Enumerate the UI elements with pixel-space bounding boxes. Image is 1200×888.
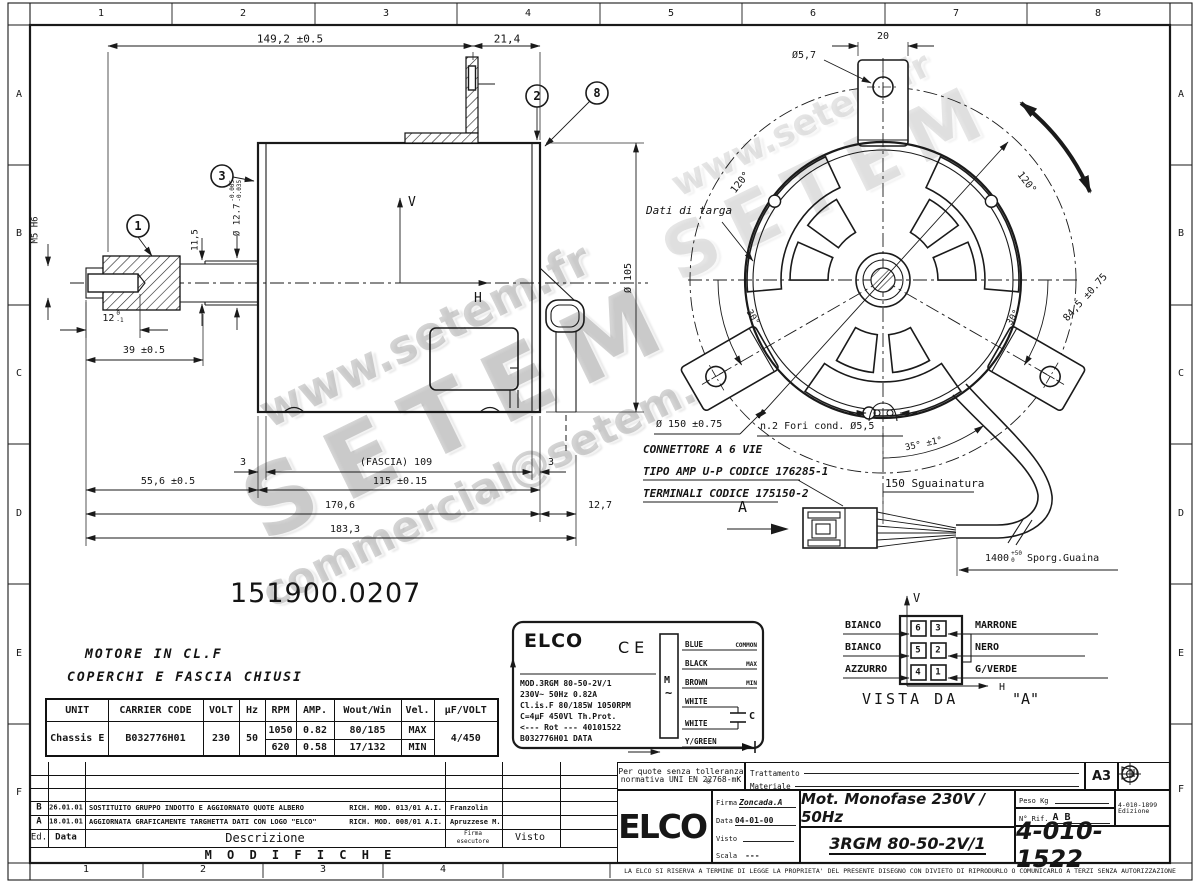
tolerance-note-box: Per quote senza tolleranza normativa UNI… [617,762,745,790]
ruler-left-e: E [16,649,22,659]
ruler-top-3: 3 [383,9,389,19]
dim-170-6: 170,6 [325,501,355,511]
spec-header-rpm: RPM [265,699,296,721]
data-value: 04-01-00 [735,817,796,826]
spec-w-min: 17/132 [334,739,401,756]
dim-11-5: 11,5 [192,229,201,251]
wire-blue: BLUE [685,641,703,649]
axis-v-label: V [408,196,416,209]
mod-b-desc: SOSTITUITO GRUPPO INDOTTO E AGGIORNATO Q… [89,805,304,812]
mods-col-line [560,762,561,847]
dim-183-3: 183,3 [330,525,360,535]
nameplate-line-3: Cl.is.F 80/185W 1050RPM [520,702,631,710]
registered-mark-icon: ® [706,777,711,786]
ruler-right-e: E [1178,649,1184,659]
spec-header-amp: AMP. [296,699,334,721]
dim-tab-width-20: 20 [877,32,889,42]
drawing-number: 4-010-1522 [1016,817,1169,873]
signature-box: FirmaZoncada.A Data04-01-00 Visto Scala-… [712,790,800,863]
spec-uf: 4/450 [434,721,498,756]
company-logo: ELCO [618,807,706,846]
wire-tag-max: MAX [746,662,757,668]
mods-header-desc: Descrizione [225,832,304,844]
axis-h-label: H [474,292,482,305]
scala-label: Scala [716,853,737,860]
tol-lower: -0.035 [237,180,244,202]
mods-header-data: Data [55,834,77,843]
ruler-bottom-4: 4 [440,865,446,875]
nameplate-line-4: C=4µF 450Vl Th.Prot. [520,713,616,721]
wire-tag-min: MIN [746,681,757,687]
weight-label: Peso Kg [1019,798,1049,805]
projection-icons-box [1118,762,1170,790]
note-connector-3: TERMINALI CODICE 175150-2 [643,488,809,499]
nameplate-line-2: 230V~ 50Hz 0.82A [520,691,597,699]
treatment-value-line [804,765,1079,774]
ruler-right-a: A [1178,90,1184,100]
spec-rpm-max: 1050 [265,721,296,739]
dim-shaft-diameter-value: Ø 12.7 [233,204,243,237]
ruler-left-d: D [16,509,22,519]
ruler-bottom-1: 1 [83,865,89,875]
wire-white-1: WHITE [685,698,708,706]
dim-overall-149: 149,2 ±0.5 [257,34,323,45]
firma-value: Zoncada.A [739,799,796,808]
spec-w-max: 80/185 [334,721,401,739]
visto-label: Visto [716,836,737,843]
ruler-top-6: 6 [810,9,816,19]
mods-row-line [30,801,617,802]
weight-box: Peso Kg [1015,790,1115,808]
ruler-left-c: C [16,369,22,379]
crosshair-target-icon [1119,763,1141,785]
dim-diameter-105: Ø 105 [624,263,634,293]
motor-symbol-m: M [664,676,670,686]
balloon-2: 2 [533,90,540,102]
spec-unit: Chassis E [46,721,108,756]
material-value-line [795,778,1079,787]
dim-39: 39 ±0.5 [123,346,165,356]
nameplate-line-5: <--- Rot --- 40101522 [520,724,621,732]
tolerance-note-line2: normativa UNI EN 22768-mK [621,776,741,784]
note-connector-1: CONNETTORE A 6 VIE [643,444,762,455]
pin-label-marrone: MARRONE [975,621,1017,631]
weight-value-line [1055,795,1109,804]
mods-banner: M O D I F I C H E [205,849,396,861]
pinview-axis-v: V [913,592,920,604]
capacitor-label: C [749,712,755,722]
mods-col-line [502,762,503,847]
rotation-direction-arrow [1021,103,1090,192]
ce-mark-icon: CE [618,640,649,656]
pin-5: 5 [915,647,920,656]
spec-header-volt: VOLT [203,699,239,721]
pin-6: 6 [915,625,920,634]
data-label: Data [716,818,733,825]
spec-header-code: CARRIER CODE [108,699,203,721]
spec-header-vel: Vel. [401,699,434,721]
firma-label: Firma [716,800,737,807]
dim-1400-value: 1400 [985,553,1009,564]
wire-brown: BROWN [685,679,708,687]
balloon-3: 3 [218,170,225,182]
pinview-title-a: "A" [1012,692,1039,707]
treatment-material-box: Trattamento Materiale [745,762,1085,790]
mods-row-line [30,829,617,830]
spec-vel-min: MIN [401,739,434,756]
wire-tag-common: COMMON [735,643,757,649]
ruler-left-b: B [16,229,22,239]
mod-a-sign: Apruzzese M. [450,819,501,826]
dim-3-right: 3 [548,458,554,468]
label-sguainatura: 150 Sguainatura [885,478,984,489]
mods-row-line [30,775,617,776]
dim-bracket-21: 21,4 [494,34,521,45]
scala-value: --- [745,852,759,860]
pin-label-gverde: G/VERDE [975,665,1017,675]
mod-b-date: 26.01.01 [49,805,83,812]
mods-header-visto: Visto [515,833,545,843]
terminal-bracket [430,328,518,390]
pin-label-azzurro: AZZURRO [845,665,887,675]
dim-3-left: 3 [240,458,246,468]
material-label: Materiale [750,783,791,791]
spec-volt: 230 [203,721,239,756]
mod-a-ed: A [36,818,41,827]
drawing-title-line2: 3RGM 80-50-2V/1 [829,834,985,855]
dim-12: 120-1 [102,311,123,325]
wire-ygreen: Y/GREEN [685,738,717,746]
spec-amp-max: 0.82 [296,721,334,739]
mods-header-ed: Ed. [31,834,47,843]
title-block-logo-box: ELCO ® [617,790,712,863]
ruler-top-1: 1 [98,9,104,19]
nameplate-brand-logo: ELCO [524,632,583,651]
ruler-top-2: 2 [240,9,246,19]
ruler-bottom-2: 2 [200,865,206,875]
spec-header-hz: Hz [239,699,265,721]
ruler-top-8: 8 [1095,9,1101,19]
mods-row-line [30,788,617,789]
note-class-line2: COPERCHI E FASCIA CHIUSI [67,671,303,684]
mods-col-line [85,762,86,847]
pinview-title: VISTA DA [862,692,958,707]
mod-b-ref: RICH. MOD. 013/01 A.I. [349,805,442,812]
part-number: 151900.0207 [230,580,421,607]
ruler-top-7: 7 [953,9,959,19]
spec-vel-max: MAX [401,721,434,739]
mods-col-line [445,762,446,847]
mods-row-line [30,815,617,816]
ground-symbol [742,743,753,751]
motor-body [258,143,540,412]
motor-symbol-tilde: ~ [665,687,672,699]
mods-col-line [617,762,618,863]
motor-side-view [48,46,648,546]
pinview-axis-h: H [999,683,1005,693]
tol-1400-lower: 0 [1011,558,1022,565]
ruler-bottom-3: 3 [320,865,326,875]
mod-b-ed: B [36,804,41,813]
mod-a-ref: RICH. MOD. 008/01 A.I. [349,819,442,826]
pin-2: 2 [935,647,940,656]
mod-a-date: 18.01.01 [49,819,83,826]
ruler-right-f: F [1178,785,1184,795]
pin-3: 3 [935,625,940,634]
dim-55-6: 55,6 ±0.5 [141,477,195,487]
dim-hole-5-7: Ø5,7 [792,51,816,61]
dim-1400-guaina: 1400+500Sporg.Guaina [985,551,1099,565]
dim-115: 115 ±0.15 [373,477,427,487]
label-conduit-holes: n.2 Fori cond. Ø5,5 [760,422,874,432]
nameplate-line-1: MOD.3RGM 80-50-2V/1 [520,680,612,688]
ruler-right-d: D [1178,509,1184,519]
mod-b-sign: Franzolin [450,805,488,812]
wire-white-2: WHITE [685,720,708,728]
treatment-label: Trattamento [750,770,800,778]
note-class-line1: MOTORE IN CL.F [85,648,223,661]
ruler-top-4: 4 [525,9,531,19]
mods-header-esec: esecutore [457,839,490,845]
spec-amp-min: 0.58 [296,739,334,756]
drawing-title-line1: Mot. Monofase 230V / 50Hz [801,790,1014,828]
dim-thread-m5: M5 H6 [32,216,41,243]
spec-rpm-min: 620 [265,739,296,756]
dim-12-7: 12,7 [588,501,612,511]
section-arrow-a: A [738,500,747,515]
pin-label-bianco-1: BIANCO [845,621,881,631]
spec-code: B032776H01 [108,721,203,756]
pin-4: 4 [915,669,920,678]
dim-diameter-150: Ø 150 ±0.75 [656,420,722,430]
nameplate-line-6: B032776H01 DATA [520,735,592,743]
drawing-title-box: Mot. Monofase 230V / 50Hz 3RGM 80-50-2V/… [800,790,1015,863]
dim-fascia-109: (FASCIA) 109 [360,458,432,468]
drawing-number-box: 4-010-1522 [1015,826,1170,863]
balloon-1: 1 [134,220,141,232]
note-connector-2: TIPO AMP U-P CODICE 176285-1 [643,466,828,477]
drawing-sheet: www.setem.fr SETEM commercial@setem.fr w… [0,0,1200,888]
label-sporg-guaina: Sporg.Guaina [1027,553,1099,564]
pin-label-bianco-2: BIANCO [845,643,881,653]
ruler-left-f: F [16,788,22,798]
mod-a-desc: AGGIORNATA GRAFICAMENTE TARGHETTA DATI C… [89,819,317,826]
ruler-right-b: B [1178,229,1184,239]
spec-header-w: Wout/Win [334,699,401,721]
dim-12-value: 12 [102,313,114,324]
edition-label: Edizione [1118,808,1149,815]
pin-1: 1 [935,669,940,678]
spec-table: UNIT CARRIER CODE VOLT Hz RPM AMP. Wout/… [45,698,499,757]
ruler-right-c: C [1178,369,1184,379]
pin-label-nero: NERO [975,643,999,653]
label-nameplate-data: Dati di targa [646,205,732,216]
sheet-format: A3 [1085,762,1118,790]
spec-hz: 50 [239,721,265,756]
wire-black: BLACK [685,660,708,668]
tol-12-lower: -1 [116,318,123,325]
dim-shaft-diameter: Ø 12.7-0.005-0.035 [230,180,244,236]
ruler-top-5: 5 [668,9,674,19]
mods-header-firma: Firma [464,831,482,837]
spec-header-unit: UNIT [46,699,108,721]
visto-value-line [743,833,794,842]
ruler-left-a: A [16,90,22,100]
balloon-8: 8 [593,87,600,99]
legal-notice: LA ELCO SI RISERVA A TERMINE DI LEGGE LA… [624,868,1176,875]
spec-header-uf: µF/VOLT [434,699,498,721]
